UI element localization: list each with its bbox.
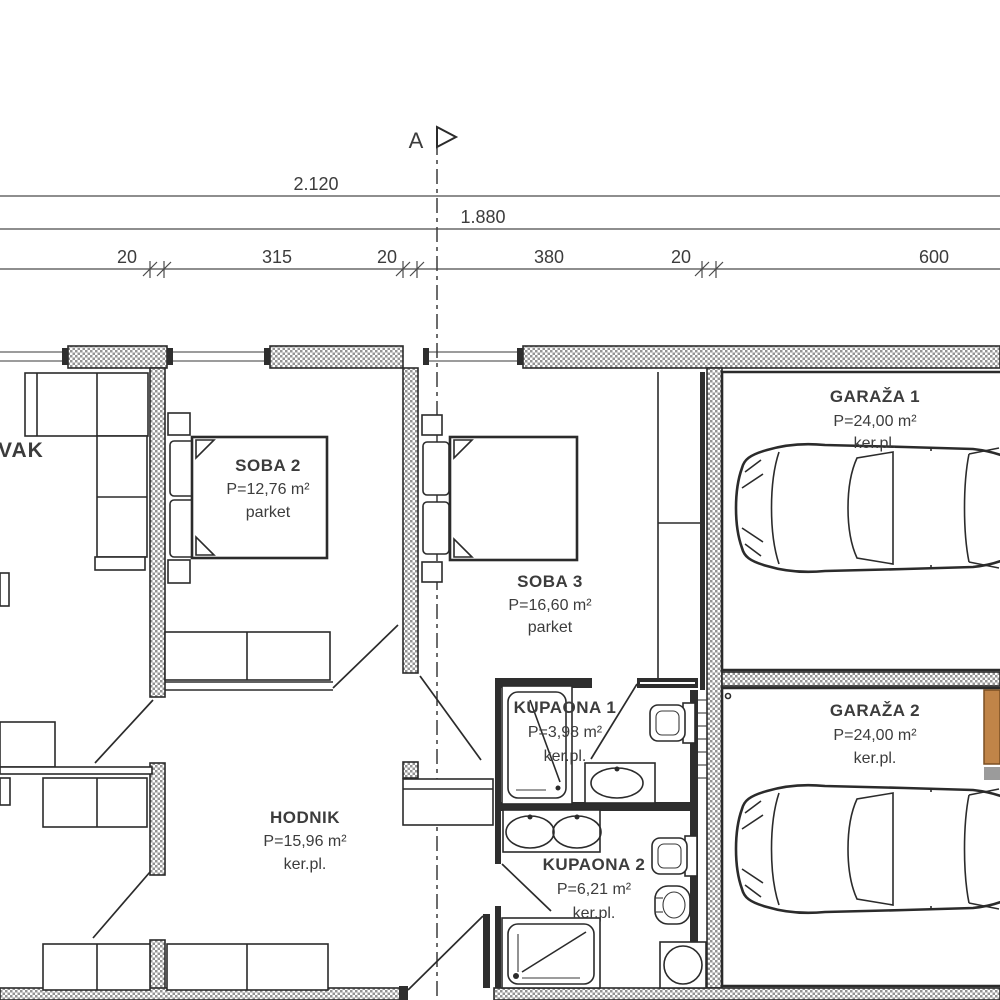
floor-plan-drawing: 2.120 1.880 20 315 20 380 20 600 A [0,0,1000,1000]
bidet [655,886,690,924]
room-area: P=6,21 m² [557,881,632,898]
tv-shelf [0,573,9,606]
cabinet-bottom-left [43,944,150,990]
label-hodnik: HODNIK P=15,96 m² ker.pl. [263,808,347,873]
dimension-inner-label: 1.880 [460,207,505,227]
wall-bottom-right [494,988,1000,1000]
room-name: GARAŽA 2 [830,701,920,720]
door-entry [408,916,483,990]
cabinet-bottom-right [167,944,328,990]
door-living-upper [95,700,153,763]
cabinet-left [0,722,55,767]
room-floor: ker.pl. [854,750,897,767]
room-name: SOBA 3 [517,572,583,591]
garage1-contents [736,444,1000,572]
entry-door-stub [399,986,408,1000]
washing-machine [660,942,706,988]
wall-corridor [403,368,418,673]
room-area: P=15,96 m² [263,833,347,850]
car-garage1 [736,444,1000,572]
wall-top-1 [68,346,167,368]
counter-band [0,767,152,774]
room-name: KUPAONA 1 [514,698,617,717]
dim-seg-2: 20 [377,247,397,267]
pillow [423,502,449,554]
room-floor: ker.pl. [284,856,327,873]
entry-door-jamb [483,914,490,988]
dimension-total-label: 2.120 [293,174,338,194]
door-soba2 [333,625,398,688]
wall-bath1-west [495,678,501,808]
label-kupaona-2: KUPAONA 2 P=6,21 m² ker.pl. [543,855,646,922]
wall-living-upper [150,368,165,697]
dim-seg-4: 20 [671,247,691,267]
section-letter: A [409,128,424,153]
nightstand [168,560,190,583]
wall-bath2-west-lower [495,906,501,988]
bathtub [502,918,600,988]
room-area: P=24,00 m² [833,727,917,744]
dimension-lines: 2.120 1.880 20 315 20 380 20 600 [0,174,1000,278]
door-living-lower [93,872,150,938]
dim-seg-1: 315 [262,247,292,267]
door-kupaona1 [591,684,637,759]
sink [585,763,655,803]
double-sink [503,810,601,852]
wall-top-3 [523,346,1000,368]
room-floor: parket [246,504,291,521]
room-name: KUPAONA 2 [543,855,646,874]
gray-cabinet [984,767,1000,780]
cabinet-mid [43,778,147,827]
orange-cabinet [984,690,1000,764]
wall-top-2 [270,346,403,368]
section-direction-triangle [437,127,456,147]
window-living-left [0,348,68,365]
garage2-corner-mark [726,694,731,699]
label-living-room-partial: VAK [0,439,44,462]
room-name: HODNIK [270,808,340,827]
dim-seg-3: 380 [534,247,564,267]
shaft-rungs [698,700,707,778]
car-garage2 [736,785,1000,913]
room-floor: ker.pl. [573,905,616,922]
kupaona2-fixtures [502,810,706,988]
bed [450,437,577,560]
wall-bath2-west-upper [495,811,501,864]
nightstand [168,413,190,435]
floor-plan-page: 2.120 1.880 20 315 20 380 20 600 A [0,0,1000,1000]
room-area: P=12,76 m² [226,481,310,498]
nightstand [422,562,442,582]
label-garaza-2: GARAŽA 2 P=24,00 m² ker.pl. [830,701,920,767]
soba3-furniture [422,415,577,582]
garage2-contents [736,690,1000,913]
wall-garage-middle [722,672,1000,686]
wall-living-bottom [150,940,165,990]
soba2-wardrobe [165,632,330,680]
wall-garage-west [707,368,722,988]
dim-seg-0: 20 [117,247,137,267]
nightstand [422,415,442,435]
room-area: P=24,00 m² [833,413,917,430]
wall-living-mid [150,763,165,875]
room-floor: ker.pl. [854,435,897,452]
label-garaza-1: GARAŽA 1 P=24,00 m² ker.pl. [830,387,920,452]
wall-apartment-east-upper [700,372,705,690]
corner-sofa [25,373,148,570]
label-soba-3: SOBA 3 P=16,60 m² parket [508,572,592,636]
room-name: SOBA 2 [235,456,301,475]
room-area: P=16,60 m² [508,597,592,614]
toilet [650,703,695,743]
room-name: GARAŽA 1 [830,387,920,406]
toilet [652,836,697,876]
soba2-furniture [165,413,330,680]
room-area: P=3,98 m² [528,724,603,741]
window-soba3 [423,348,523,365]
room-floor: ker.pl. [544,748,587,765]
room-floor: parket [528,619,573,636]
window-soba2 [167,348,270,365]
hodnik-closet [403,779,493,825]
cabinet-return [0,778,10,805]
pillow [423,442,449,495]
wall-corridor-stub [403,762,418,778]
dim-seg-5: 600 [919,247,949,267]
door-soba3 [420,676,481,760]
